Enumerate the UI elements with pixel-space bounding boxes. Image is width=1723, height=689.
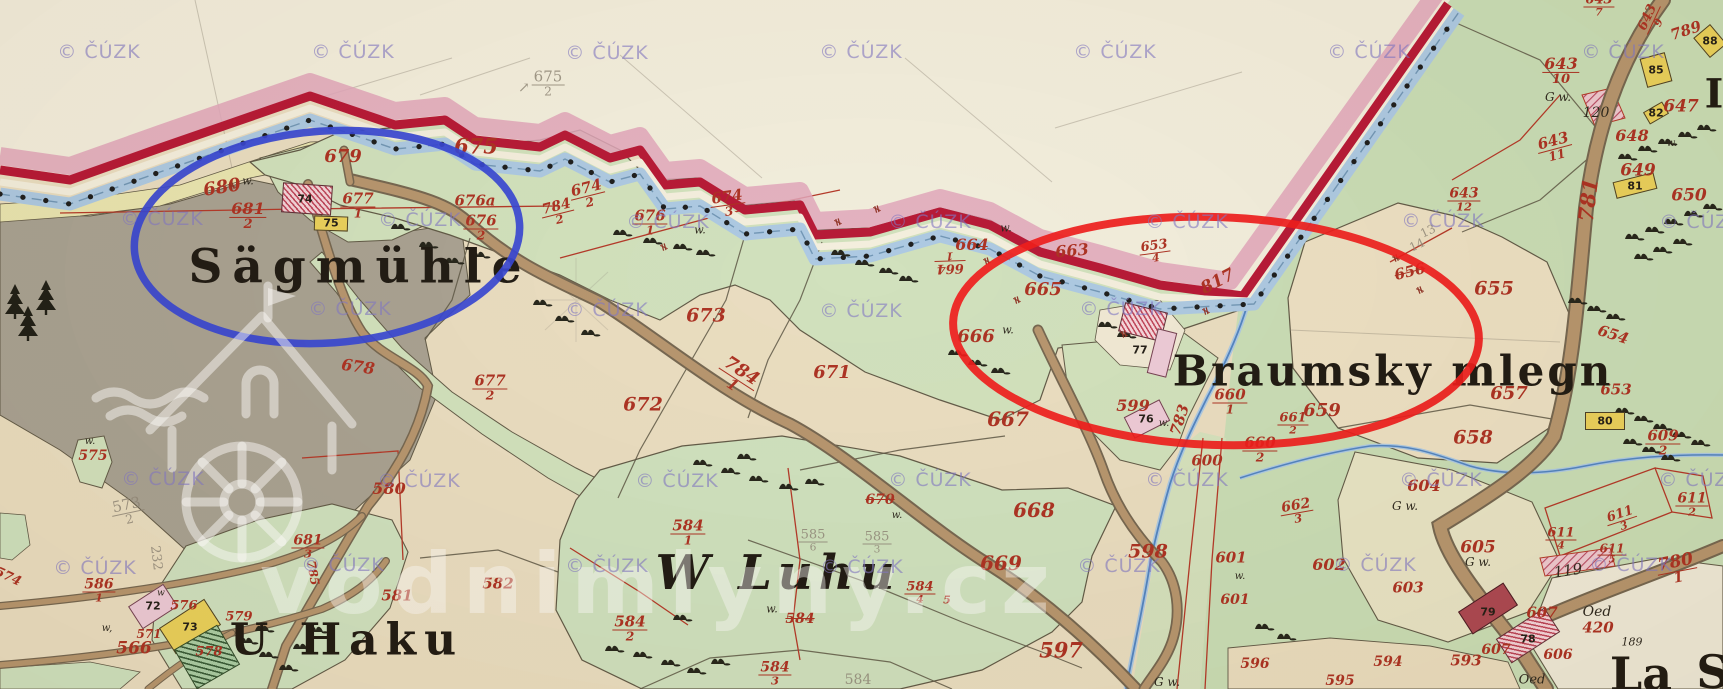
paper-vignette xyxy=(0,0,1723,689)
cadastral-map-viewport: 74757776727385828180887978 6752↗67567968… xyxy=(0,0,1723,689)
